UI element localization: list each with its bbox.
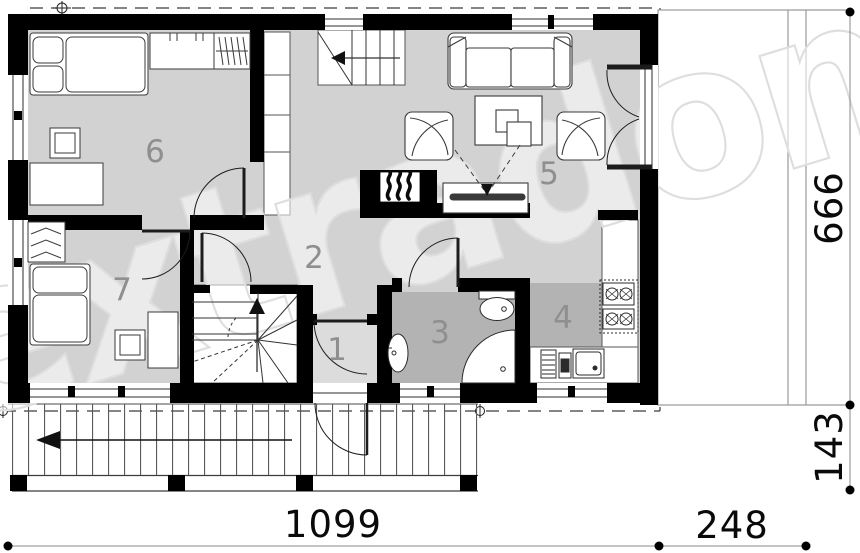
window-top-stair: [325, 14, 363, 30]
armchair-icon: [557, 112, 605, 160]
deck-post: [460, 475, 477, 491]
window-top-living: [512, 14, 593, 30]
dimension-value-height-main: 666: [808, 171, 851, 245]
nightstand-icon: [50, 128, 80, 158]
sink-icon: [573, 349, 604, 378]
window-bottom-room7: [30, 383, 170, 403]
window-left-room7: [8, 220, 28, 305]
dimension-dot: [846, 401, 855, 410]
small-appliance-icon: [559, 353, 571, 378]
dimension-value-height-lower: 143: [808, 410, 851, 484]
deck-post: [296, 475, 313, 491]
desk-icon: [30, 163, 103, 205]
wall-interior: [180, 230, 194, 383]
armchair-icon: [405, 112, 453, 160]
wall-interior: [192, 285, 210, 293]
fireplace: [380, 172, 420, 202]
dish-rack-icon: [541, 350, 556, 378]
sofa-icon: [448, 33, 572, 89]
floor-plan-drawing: extradom: [0, 0, 860, 553]
room-label-7: 7: [112, 272, 132, 308]
desk-icon: [148, 312, 178, 368]
wardrobe-icon: [150, 33, 250, 69]
wall-interior: [190, 215, 264, 230]
room-label-4: 4: [553, 300, 573, 336]
bed-single-icon: [30, 264, 90, 345]
room-label-2: 2: [304, 240, 324, 276]
wall-interior: [250, 285, 313, 294]
dimension-dot: [655, 542, 664, 551]
wardrobe-icon: [28, 222, 65, 262]
bed-double-icon: [30, 33, 148, 95]
deck-post: [10, 475, 27, 491]
window-bottom-bathroom: [400, 383, 460, 403]
dimension-dot: [846, 486, 855, 495]
dimension-dot: [846, 8, 855, 17]
window-left-room6: [8, 75, 28, 160]
room-label-5: 5: [539, 156, 559, 192]
wall-interior: [392, 278, 402, 292]
balcony-door-opening: [640, 65, 658, 169]
room-label-3: 3: [430, 315, 450, 351]
wall-interior: [598, 210, 638, 220]
room-label-6: 6: [145, 134, 165, 170]
wall-interior: [515, 278, 530, 383]
dimension-dot: [802, 542, 811, 551]
dimension-value-width-main: 1099: [284, 503, 382, 546]
dimension-value-width-side: 248: [695, 504, 769, 547]
wall-exterior-left: [8, 14, 28, 403]
room-label-1: 1: [327, 332, 347, 368]
floor-plan: extradom: [0, 0, 860, 553]
wall-interior: [297, 285, 313, 383]
dimension-dot: [4, 542, 13, 551]
wall-interior: [377, 285, 392, 383]
nightstand-icon: [115, 330, 145, 360]
washbasin-icon: [388, 334, 408, 372]
coffee-table-icon: [475, 96, 542, 146]
deck-post: [168, 475, 185, 491]
window-bottom-kitchen: [537, 383, 607, 403]
toilet-icon: [479, 291, 515, 321]
wall-interior: [250, 30, 264, 162]
entrance-door-opening: [313, 383, 367, 403]
